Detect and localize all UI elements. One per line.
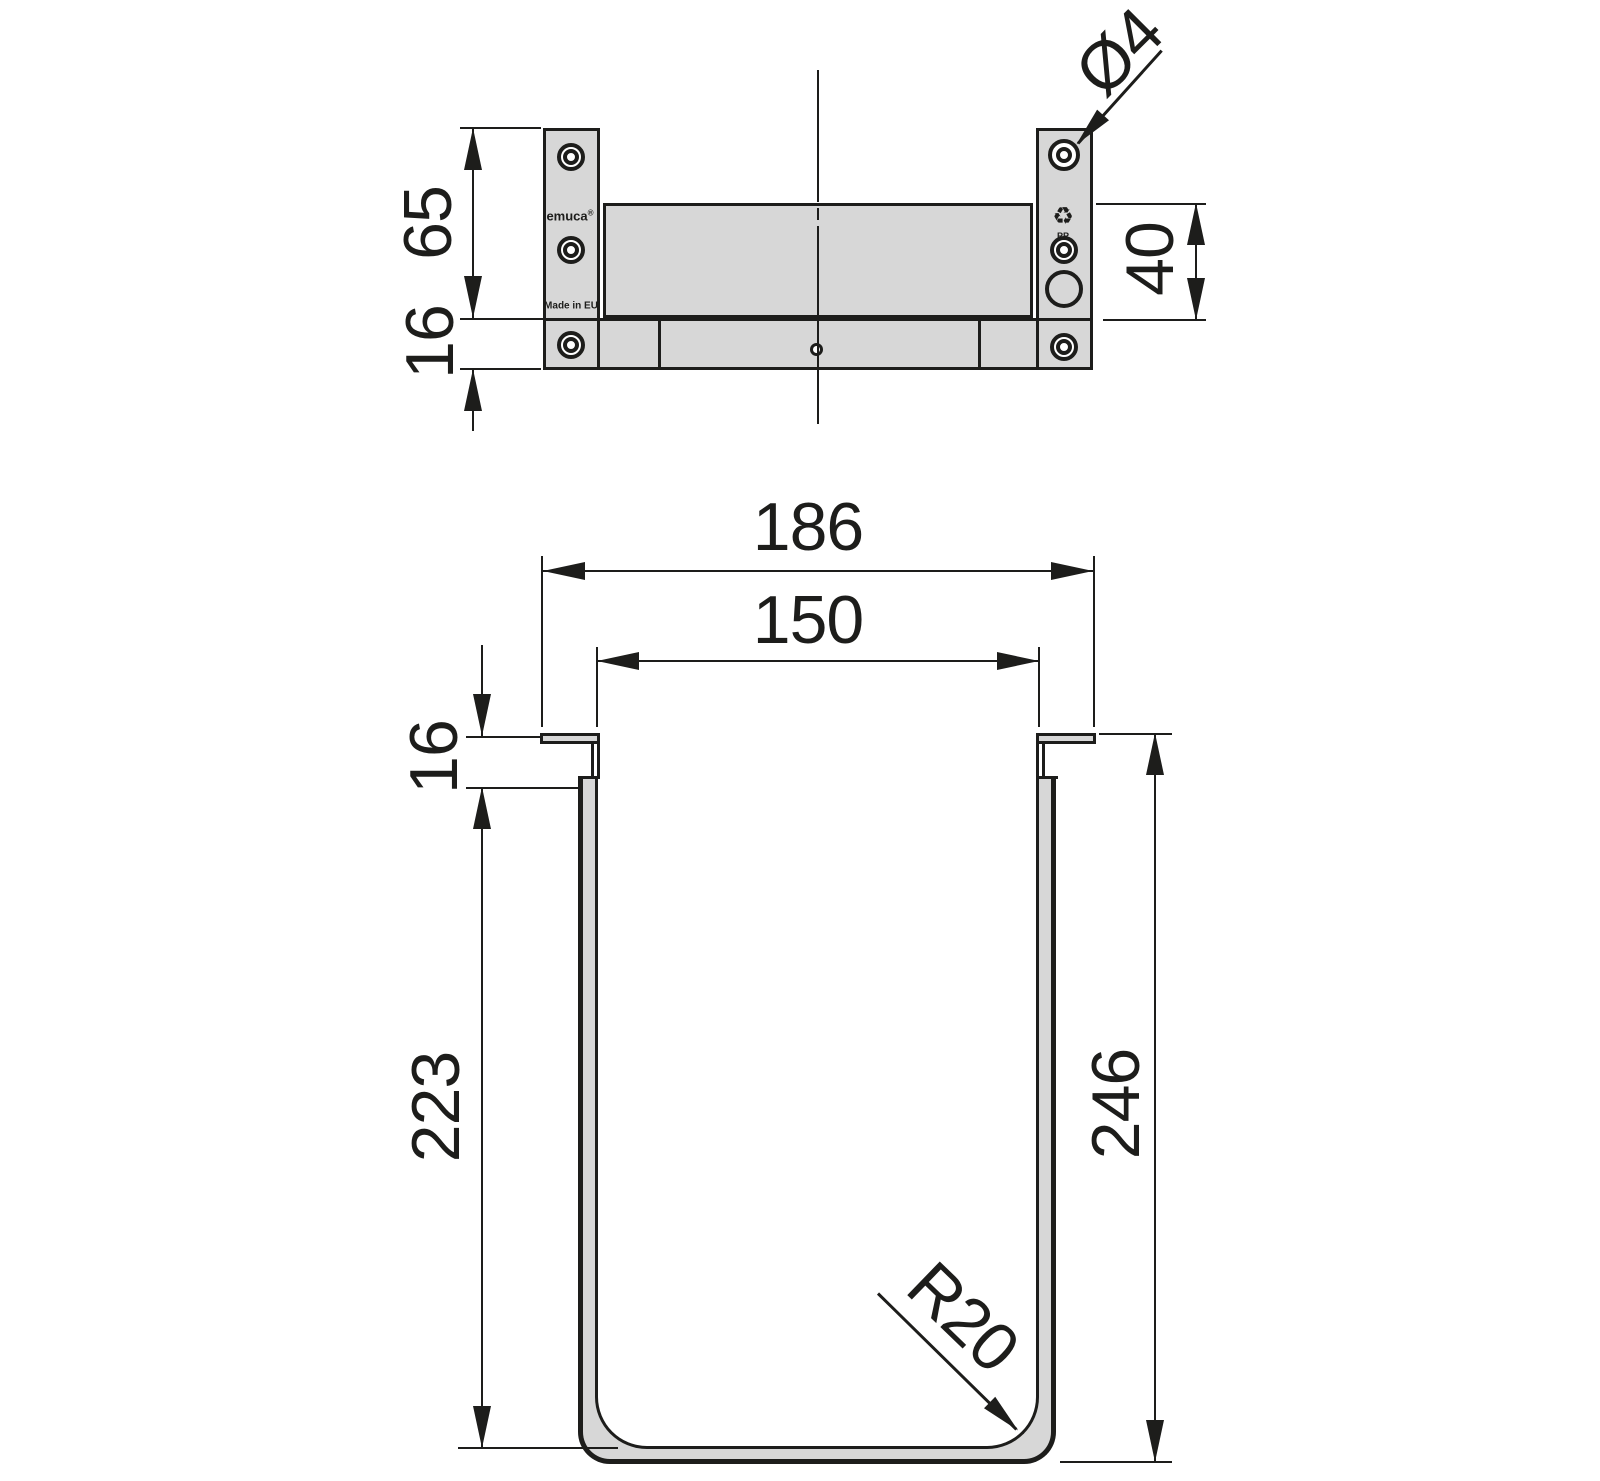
arrowhead xyxy=(1187,278,1205,320)
dim-label-223: 223 xyxy=(402,1052,470,1162)
arrowhead xyxy=(1146,733,1164,775)
brand-logo-text: emuca xyxy=(546,209,587,224)
left-wall-inner xyxy=(597,744,600,779)
clearance-hole xyxy=(1045,270,1083,308)
arrowhead xyxy=(473,787,491,829)
screw-hole-inner xyxy=(563,337,579,353)
ext-line xyxy=(466,736,540,738)
ext-line xyxy=(458,1447,618,1449)
registered-mark: ® xyxy=(588,208,594,217)
strip-joint-left xyxy=(658,321,661,367)
arrowhead xyxy=(473,694,491,736)
arrowhead xyxy=(597,652,639,670)
arrowhead xyxy=(1146,1420,1164,1462)
left-wall-outer xyxy=(591,744,594,779)
arrowhead xyxy=(1051,562,1093,580)
ext-line xyxy=(541,556,543,727)
recycling-code-label: PP xyxy=(1057,231,1069,241)
right-wall-inner xyxy=(1036,744,1039,779)
strip-joint-right xyxy=(978,321,981,367)
centerline xyxy=(817,70,819,202)
left-flange xyxy=(540,733,600,744)
ext-line xyxy=(1093,556,1095,727)
screw-hole-inner xyxy=(1056,147,1072,163)
arrowhead xyxy=(1187,203,1205,245)
centerline-dash xyxy=(817,208,819,220)
dim-label-16-front: 16 xyxy=(400,720,468,794)
right-wall-outer xyxy=(1042,744,1045,779)
dim-label-dia4: Ø4 xyxy=(1064,0,1175,107)
arrowhead xyxy=(464,128,482,170)
arrowhead xyxy=(473,1406,491,1448)
right-flange xyxy=(1036,733,1096,744)
recycle-icon: ♻ xyxy=(1052,202,1074,230)
arrowhead xyxy=(543,562,585,580)
made-in-label: Made in EU xyxy=(544,301,598,312)
screw-hole-inner xyxy=(1056,242,1072,258)
dim-label-246: 246 xyxy=(1082,1049,1150,1159)
ext-line xyxy=(460,318,543,320)
dim-label-186: 186 xyxy=(753,493,863,561)
dim-label-150: 150 xyxy=(753,586,863,654)
dim-line-223 xyxy=(481,787,483,1448)
screw-hole-inner xyxy=(563,242,579,258)
screw-hole-inner xyxy=(563,149,579,165)
dim-label-65: 65 xyxy=(394,186,462,260)
brand-logo: emuca® xyxy=(546,208,593,223)
dim-line-150 xyxy=(597,660,1039,662)
dim-line-246 xyxy=(1154,733,1156,1462)
dim-label-16-top: 16 xyxy=(396,305,464,379)
dim-label-40: 40 xyxy=(1116,222,1184,296)
screw-hole-inner xyxy=(1056,339,1072,355)
technical-drawing-canvas: emuca® Made in EU ♻ PP 65 16 40 Ø4 xyxy=(0,0,1600,1481)
dim-line-186 xyxy=(543,570,1093,572)
arrowhead xyxy=(997,652,1039,670)
centerline xyxy=(817,226,819,424)
